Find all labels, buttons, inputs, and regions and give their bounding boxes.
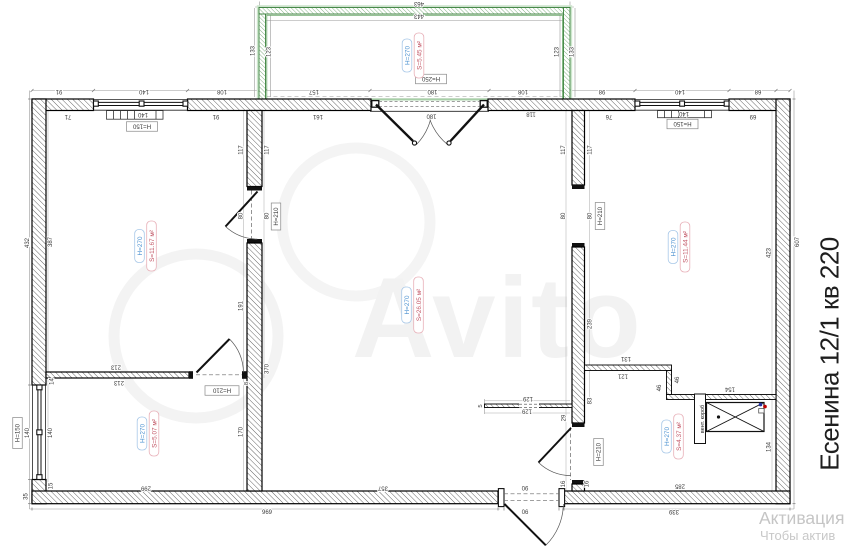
svg-text:357: 357: [377, 484, 388, 490]
svg-text:98: 98: [598, 88, 605, 94]
svg-text:46: 46: [657, 384, 663, 391]
svg-text:432: 432: [25, 237, 31, 248]
svg-text:969: 969: [262, 510, 273, 516]
svg-text:80: 80: [239, 212, 245, 219]
svg-text:29: 29: [562, 414, 568, 421]
svg-text:76: 76: [605, 113, 612, 119]
svg-text:H=270: H=270: [670, 237, 677, 256]
svg-text:170: 170: [239, 426, 245, 437]
svg-text:131: 131: [620, 355, 631, 361]
svg-text:157: 157: [308, 88, 319, 94]
svg-text:129: 129: [521, 407, 532, 413]
svg-text:S=11.67 м²: S=11.67 м²: [149, 230, 156, 262]
svg-text:16: 16: [585, 480, 591, 487]
svg-text:83: 83: [588, 397, 594, 404]
svg-text:140: 140: [25, 427, 31, 438]
svg-text:S=5.45 м²: S=5.45 м²: [416, 41, 423, 70]
svg-text:108: 108: [216, 88, 227, 94]
svg-text:117: 117: [588, 145, 594, 155]
svg-text:H=150: H=150: [15, 423, 22, 442]
svg-text:46: 46: [675, 376, 681, 383]
svg-text:108: 108: [517, 88, 528, 94]
svg-text:H=270: H=270: [404, 46, 411, 65]
svg-text:123: 123: [555, 46, 561, 57]
svg-text:71: 71: [64, 113, 71, 119]
svg-text:140: 140: [674, 88, 685, 94]
svg-text:129: 129: [522, 395, 533, 401]
svg-text:118: 118: [526, 111, 536, 117]
svg-text:121: 121: [617, 372, 628, 378]
svg-text:91: 91: [55, 88, 62, 94]
svg-text:140: 140: [137, 111, 148, 117]
svg-text:133: 133: [570, 46, 576, 57]
svg-text:H=210: H=210: [212, 386, 231, 393]
svg-text:140: 140: [678, 110, 689, 116]
svg-text:H=270: H=270: [137, 236, 144, 255]
svg-text:69: 69: [749, 113, 756, 119]
svg-text:H=270: H=270: [404, 295, 411, 314]
svg-text:Чтобы актив: Чтобы актив: [760, 528, 835, 543]
svg-text:80: 80: [265, 212, 271, 219]
svg-text:180: 180: [426, 112, 437, 118]
svg-text:S=11.44 м²: S=11.44 м²: [682, 231, 689, 263]
svg-text:339: 339: [668, 508, 679, 514]
svg-text:5: 5: [478, 404, 484, 407]
svg-text:S=26.05 м²: S=26.05 м²: [416, 289, 423, 321]
svg-text:H=270: H=270: [664, 427, 671, 446]
svg-text:68: 68: [754, 88, 761, 94]
svg-text:35: 35: [24, 493, 30, 500]
svg-text:вент. короб: вент. короб: [700, 405, 706, 433]
svg-text:133: 133: [251, 45, 257, 56]
svg-text:H=210: H=210: [596, 442, 603, 461]
svg-text:443: 443: [413, 13, 424, 19]
svg-text:285: 285: [674, 482, 685, 488]
svg-text:191: 191: [239, 300, 245, 311]
svg-text:Avito: Avito: [352, 255, 643, 382]
svg-text:463: 463: [413, 0, 424, 6]
svg-text:423: 423: [767, 247, 773, 258]
svg-text:161: 161: [312, 113, 323, 119]
svg-text:H=250: H=250: [421, 75, 440, 82]
svg-text:134: 134: [767, 441, 773, 452]
svg-text:117: 117: [265, 145, 271, 155]
svg-text:Есенина 12/1 кв 220: Есенина 12/1 кв 220: [815, 237, 845, 471]
svg-text:H=210: H=210: [597, 206, 604, 225]
svg-text:154: 154: [724, 385, 735, 391]
svg-text:299: 299: [140, 484, 151, 490]
svg-text:H=150: H=150: [673, 120, 692, 127]
svg-text:Активация: Активация: [759, 508, 844, 528]
svg-text:239: 239: [588, 318, 594, 329]
svg-text:607: 607: [795, 236, 801, 247]
svg-text:H=210: H=210: [273, 207, 280, 226]
svg-text:80: 80: [588, 212, 594, 219]
svg-text:H=150: H=150: [132, 122, 151, 129]
svg-text:8: 8: [244, 382, 250, 385]
svg-text:140: 140: [138, 88, 149, 94]
svg-text:180: 180: [427, 88, 438, 94]
svg-text:16: 16: [561, 480, 567, 487]
svg-text:213: 213: [113, 379, 124, 385]
svg-text:370: 370: [265, 363, 271, 374]
svg-text:123: 123: [267, 46, 273, 57]
svg-text:14: 14: [50, 378, 56, 385]
svg-text:80: 80: [561, 212, 567, 219]
svg-text:117: 117: [239, 145, 245, 155]
svg-text:90: 90: [521, 507, 528, 513]
svg-text:90: 90: [521, 484, 528, 490]
svg-text:387: 387: [48, 236, 54, 247]
svg-text:117: 117: [561, 145, 567, 155]
svg-text:H=270: H=270: [139, 424, 146, 443]
svg-text:15: 15: [49, 482, 55, 489]
svg-text:91: 91: [212, 113, 219, 119]
svg-text:S=4.37 м²: S=4.37 м²: [676, 422, 683, 451]
svg-text:213: 213: [110, 363, 121, 369]
svg-text:140: 140: [48, 427, 54, 438]
svg-text:S=5.07 м²: S=5.07 м²: [151, 419, 158, 448]
